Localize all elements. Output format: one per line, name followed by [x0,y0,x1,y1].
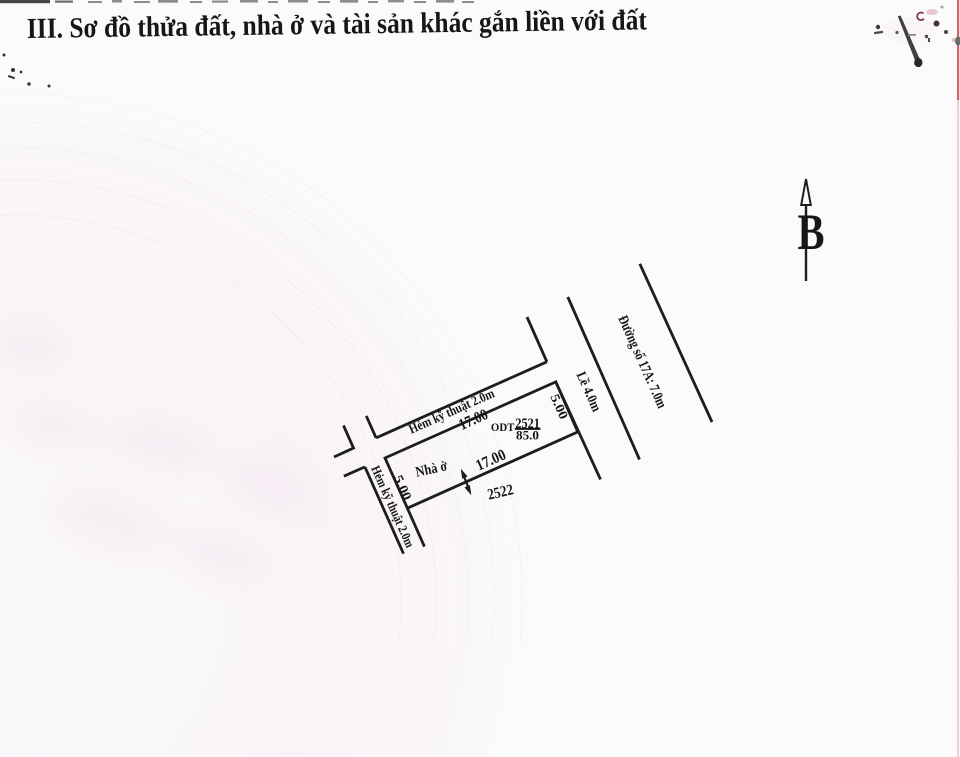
svg-text:ODT: ODT [491,420,515,434]
svg-text:B: B [798,205,825,261]
svg-text:85.0: 85.0 [516,427,539,442]
